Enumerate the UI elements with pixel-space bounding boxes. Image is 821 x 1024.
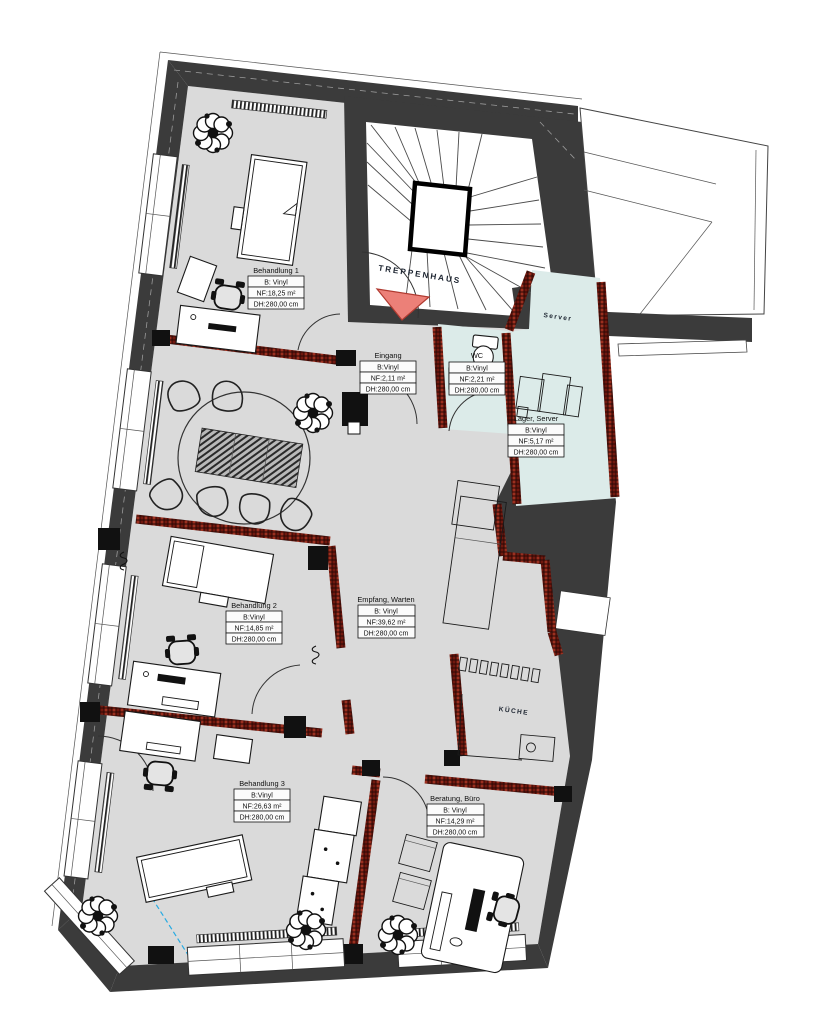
svg-text:NF:14,85 m²: NF:14,85 m² [235, 626, 275, 633]
svg-text:Behandlung 2: Behandlung 2 [231, 601, 277, 610]
plant-icon [194, 113, 233, 152]
svg-text:DH:280,00 cm: DH:280,00 cm [240, 815, 285, 822]
plant-icon [79, 896, 118, 935]
wing-outline [580, 108, 768, 316]
svg-text:Beratung, Büro: Beratung, Büro [430, 794, 480, 803]
svg-text:Behandlung 3: Behandlung 3 [239, 779, 285, 788]
room-label-lager-server: Lager, Server B:Vinyl NF:5,17 m² DH:280,… [508, 414, 564, 457]
side-table [214, 735, 253, 764]
svg-text:DH:280,00 cm: DH:280,00 cm [232, 637, 277, 644]
svg-text:Eingang: Eingang [374, 351, 401, 360]
svg-text:Behandlung 1: Behandlung 1 [253, 266, 299, 275]
svg-text:WC: WC [471, 351, 484, 360]
floor-plan-page: TREPPENHAUS [0, 0, 821, 1024]
room-label-behandlung-2: Behandlung 2 B:Vinyl NF:14,85 m² DH:280,… [226, 601, 282, 644]
svg-text:DH:280,00 cm: DH:280,00 cm [514, 450, 559, 457]
svg-text:DH:280,00 cm: DH:280,00 cm [366, 387, 411, 394]
svg-text:B: Vinyl: B: Vinyl [374, 609, 398, 616]
plant-icon [294, 393, 333, 432]
svg-text:B: Vinyl: B: Vinyl [443, 808, 467, 815]
svg-text:B:Vinyl: B:Vinyl [251, 793, 273, 800]
svg-text:NF:2,21 m²: NF:2,21 m² [459, 377, 495, 384]
stair-void [410, 183, 470, 255]
wall-niche [555, 591, 610, 636]
svg-text:B: Vinyl: B: Vinyl [264, 280, 288, 287]
room-label-empfang-warten: Empfang, Warten B: Vinyl NF:39,62 m² DH:… [357, 595, 415, 638]
room-label-behandlung-1: Behandlung 1 B: Vinyl NF:18,25 m² DH:280… [248, 266, 304, 309]
svg-text:NF:26,63 m²: NF:26,63 m² [243, 804, 283, 811]
floor-plan-drawing: TREPPENHAUS [0, 0, 821, 1024]
plant-icon [379, 915, 418, 954]
svg-text:NF:39,62 m²: NF:39,62 m² [367, 620, 407, 627]
svg-text:B:Vinyl: B:Vinyl [243, 615, 265, 622]
svg-text:NF:14,29 m²: NF:14,29 m² [436, 819, 476, 826]
svg-text:DH:280,00 cm: DH:280,00 cm [254, 302, 299, 309]
svg-text:B:Vinyl: B:Vinyl [525, 428, 547, 435]
svg-text:DH:280,00 cm: DH:280,00 cm [364, 631, 409, 638]
svg-text:DH:280,00 cm: DH:280,00 cm [433, 830, 478, 837]
svg-text:B:Vinyl: B:Vinyl [377, 365, 399, 372]
svg-text:NF:2,11 m²: NF:2,11 m² [371, 376, 406, 383]
room-label-beratung-buero: Beratung, Büro B: Vinyl NF:14,29 m² DH:2… [427, 794, 484, 837]
room-label-behandlung-3: Behandlung 3 B:Vinyl NF:26,63 m² DH:280,… [234, 779, 290, 822]
wing-bottom-strip [618, 340, 747, 356]
svg-text:Lager, Server: Lager, Server [514, 414, 559, 423]
plant-icon [287, 910, 326, 949]
svg-text:B:Vinyl: B:Vinyl [466, 366, 488, 373]
svg-text:Empfang, Warten: Empfang, Warten [357, 595, 414, 604]
svg-text:DH:280,00 cm: DH:280,00 cm [455, 388, 500, 395]
svg-text:NF:5,17 m²: NF:5,17 m² [518, 439, 554, 446]
svg-text:NF:18,25 m²: NF:18,25 m² [257, 291, 297, 298]
